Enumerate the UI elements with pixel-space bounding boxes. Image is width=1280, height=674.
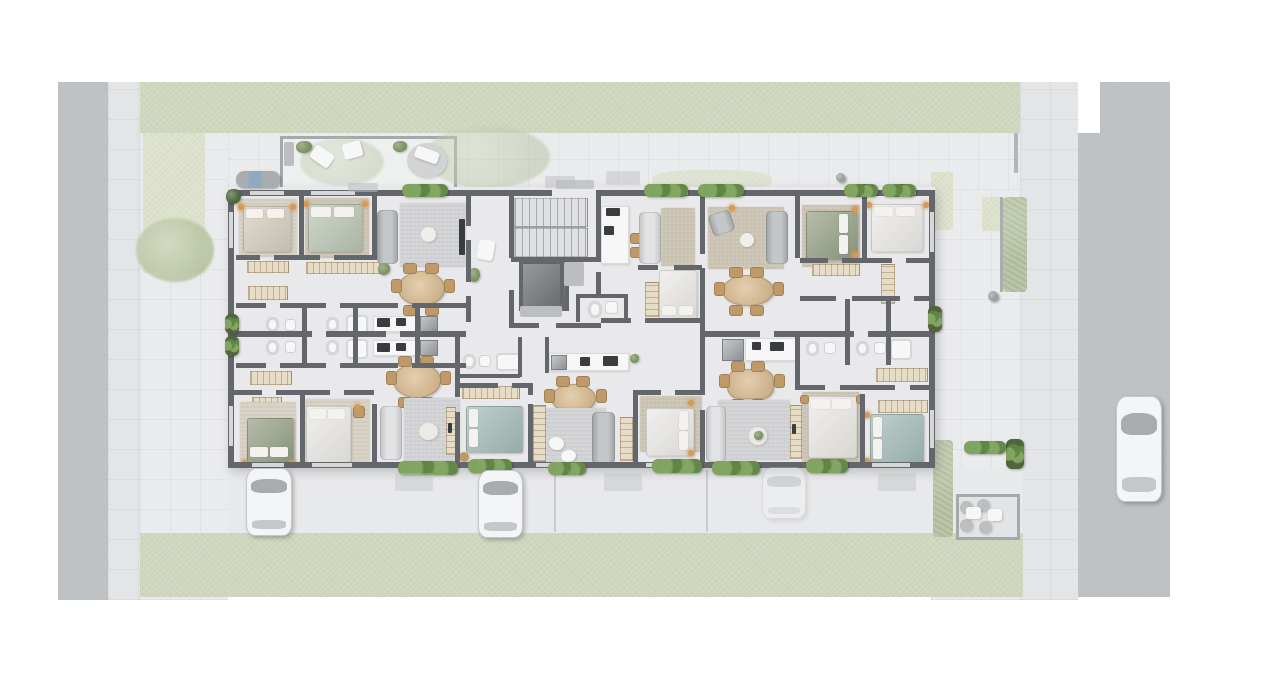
lounger-terrace-a (476, 239, 495, 261)
patio-fence-left (280, 136, 283, 190)
toilet-core (588, 301, 602, 318)
stove-f (770, 342, 784, 351)
wall-f-beds-2 (840, 385, 895, 390)
right-hedge-wall (1000, 197, 1003, 292)
wall-a-beds-2 (274, 255, 320, 260)
dining-table-d (393, 363, 441, 398)
planter-bottom-6 (806, 459, 848, 473)
wall-core-left-1 (509, 196, 514, 258)
stove-a (377, 318, 390, 327)
planter-right-wall (928, 306, 942, 332)
wall-shaft (560, 260, 564, 304)
right-wall-small (1014, 133, 1018, 173)
patio-shelf (284, 142, 294, 166)
br-patio-table-2 (988, 509, 1002, 521)
chair-f-3 (719, 374, 730, 388)
pillow-c2-l (874, 207, 893, 216)
person-plaza (988, 291, 998, 301)
wall-mid-left-1 (232, 331, 312, 337)
wall-lobby-2 (556, 323, 601, 328)
fridge-e (551, 355, 567, 370)
window-right-2 (930, 410, 934, 448)
toilet-bath-a1 (266, 317, 279, 332)
wall-e-kitchen-v (545, 337, 549, 373)
wall-corebath-h (576, 294, 628, 298)
wall-d-kit-v (415, 337, 420, 365)
wardrobe-a2 (306, 262, 380, 274)
pillow-d2-l (309, 409, 326, 419)
toilet-bath-d1 (266, 340, 279, 355)
lamp-e2-t (688, 400, 694, 406)
chair-f-2 (751, 361, 765, 372)
sink-e (479, 355, 491, 367)
wardrobe-d1 (250, 371, 292, 385)
wall-c-bath-v1 (845, 299, 850, 331)
chair-d-3 (386, 371, 397, 385)
wall-a-band-4 (412, 303, 466, 308)
entry-mat (556, 180, 594, 189)
pillow-a1-r (267, 209, 284, 218)
right-road-top (1100, 82, 1170, 135)
parking-pad-2 (604, 473, 642, 491)
patio-fence-top (280, 136, 457, 139)
dining-table-a (398, 271, 445, 306)
wall-a-band-3 (340, 303, 398, 308)
br-patio-chair-4 (979, 521, 992, 534)
planter-top-3 (698, 184, 744, 197)
tv-d (448, 423, 452, 433)
tv-unit-a (459, 219, 465, 255)
sink-f (752, 342, 761, 350)
lamp-a1-r (290, 204, 296, 210)
sofa-d (380, 406, 402, 460)
right-bush-strip (1006, 439, 1024, 469)
wall-a-beds-1 (236, 255, 260, 260)
wall-b-bed-4 (645, 318, 700, 323)
wall-f-beds-3 (910, 385, 935, 390)
lamp-a1-l (238, 204, 244, 210)
br-patio-table-1 (966, 507, 981, 519)
planter-top-1 (402, 184, 448, 197)
wall-c-living-c1 (795, 196, 800, 258)
wall-c-bath-v2 (886, 299, 891, 331)
wall-a-terrace-2 (466, 240, 471, 282)
car-parked-2 (478, 470, 523, 538)
car-street-right (1116, 396, 1162, 502)
stair-flight-1 (514, 198, 588, 227)
wall-a-band-1 (236, 303, 266, 308)
stair-flight-2 (514, 228, 588, 257)
left-tree (136, 218, 214, 282)
pillow-f1-l (811, 399, 830, 409)
wall-core-right-2 (596, 272, 601, 294)
sink-bath-f1 (824, 342, 836, 354)
lamp-c1-t (852, 206, 858, 212)
pillow-f2-b (873, 439, 882, 459)
car-parked-1 (246, 468, 292, 536)
wall-f1-f2 (860, 394, 865, 468)
wardrobe-e2 (620, 417, 633, 461)
window-left-1 (229, 212, 233, 248)
microwave-a (396, 318, 406, 326)
wall-e-bath-v (518, 337, 522, 377)
sink-bath-a1 (285, 319, 296, 331)
left-road (58, 82, 108, 600)
wall-e1-top-1 (458, 383, 498, 388)
wall-a-beds-3 (334, 255, 372, 260)
wall-e-bath (458, 374, 520, 378)
planter-top-4 (844, 184, 878, 197)
pillow-d2-r (328, 409, 345, 419)
top-grass-band (140, 82, 1020, 133)
wall-f-bath-left (795, 337, 800, 385)
wall-b-c-1 (700, 196, 705, 254)
pillow-d1-r (270, 447, 288, 457)
wall-core-left-2 (509, 290, 514, 326)
bottom-grass-band (140, 533, 1023, 597)
wall-corebath-v1 (576, 294, 580, 322)
pillow-b-1 (662, 306, 676, 315)
chair-c-1 (729, 267, 743, 278)
window-right-1 (930, 212, 934, 252)
pillow-f1-r (832, 399, 851, 409)
bed-d1 (247, 418, 294, 465)
chair-e-3 (544, 389, 555, 403)
car-ghost (762, 467, 806, 519)
parking-pad-1 (395, 473, 433, 491)
pillow-c1-b (839, 235, 848, 254)
wall-a2-living (372, 196, 377, 260)
wall-b-bed-2 (674, 265, 702, 270)
pillow-e2-t (679, 411, 688, 430)
stove-b (606, 208, 620, 216)
planter-bottom-3 (548, 462, 586, 475)
wall-d-e-2 (455, 412, 460, 468)
chair-a-1 (403, 263, 417, 274)
wardrobe-c1 (812, 264, 860, 276)
right-sidewalk (1020, 82, 1078, 600)
sofa-e (592, 412, 615, 464)
chair-d-4 (440, 371, 451, 385)
pillow-e2-b (679, 431, 688, 450)
walkway-pad-1 (348, 183, 378, 192)
sink-bath-f2 (874, 342, 886, 354)
planter-top-5 (882, 184, 916, 197)
chair-a-4 (444, 279, 455, 293)
lamp-c (729, 205, 735, 211)
scooter (236, 171, 280, 188)
pillow-c2-r (896, 207, 915, 216)
br-patio-chair-3 (960, 519, 973, 532)
chair-c-5 (729, 305, 743, 316)
pillow-b-2 (679, 306, 693, 315)
pillow-a1-l (246, 209, 263, 218)
wall-d1-d2 (300, 394, 305, 468)
coffee-table-a (421, 227, 436, 242)
shaft (564, 262, 584, 286)
pillow-c1-t (839, 214, 848, 233)
toilet-f2 (856, 341, 869, 356)
sink-kitchen-e (580, 357, 590, 366)
window-bottom-8 (872, 463, 910, 467)
sideboard-e (533, 405, 546, 462)
lamp-a2-r (362, 201, 368, 207)
wall-d-band-1 (236, 363, 266, 368)
wall-e2-left (633, 394, 638, 468)
drive-seam-2 (706, 470, 708, 532)
dresser-a (248, 286, 288, 300)
stove-d (377, 343, 390, 352)
planter-bottom-right (964, 441, 1006, 454)
nightstand-f1-l (800, 395, 809, 404)
sink-core (605, 301, 618, 314)
coffee-table-d (419, 423, 438, 440)
wall-b-bed-1 (638, 265, 658, 270)
chair-c-4 (773, 282, 784, 296)
pillow-a2-l (311, 207, 331, 217)
pillow-f2-t (873, 417, 882, 437)
pillow-e1-b (469, 429, 478, 447)
br-patio-fence-left (956, 494, 959, 540)
wall-a-bath-v1 (302, 306, 307, 333)
wall-c1-c2 (862, 196, 867, 258)
sofa-b (639, 212, 661, 264)
lobby-mat (520, 306, 562, 317)
coffee-table-c (740, 233, 754, 247)
sink-b (604, 226, 614, 235)
wall-f-bath-v2 (886, 337, 891, 365)
wardrobe-f1 (876, 368, 928, 382)
lamp-d2 (355, 404, 360, 409)
chair-f-4 (774, 374, 785, 388)
microwave-d (396, 343, 406, 351)
shower-f (890, 339, 912, 360)
chair-c-2 (750, 267, 764, 278)
wall-c-band-2 (852, 296, 900, 301)
chair-f-1 (731, 361, 745, 372)
wall-e1-right-2 (528, 404, 533, 468)
wall-d-beds-3 (344, 390, 374, 395)
tv-f (792, 424, 796, 434)
wall-b-bed-3 (601, 318, 631, 323)
br-patio-fence-top (956, 494, 1020, 497)
wall-mid-right-2 (774, 331, 854, 337)
pillow-a2-r (334, 207, 354, 217)
wardrobe-a1 (247, 261, 289, 273)
planter-left-1 (225, 314, 239, 334)
wall-d-bath-v1 (302, 337, 307, 365)
wall-a-bath-v2 (353, 306, 358, 333)
sofa-f (706, 406, 726, 462)
wall-c-beds-1 (800, 258, 828, 263)
walkway-pad-3 (606, 171, 640, 185)
br-patio-fence-right (1017, 494, 1020, 540)
chair-a-3 (391, 279, 402, 293)
wall-e-f-2 (700, 410, 705, 468)
wall-stairs-bottom (511, 257, 601, 262)
planter-left-2 (225, 336, 239, 356)
wall-c-band-3 (914, 296, 934, 301)
right-road (1078, 133, 1170, 597)
wall-mid-right-3 (868, 331, 935, 337)
entrance-gap (552, 190, 596, 196)
pillow-e1-t (469, 409, 478, 427)
right-hedge-1b (982, 197, 1000, 231)
toilet-f1 (806, 341, 819, 356)
wall-c-beds-2 (842, 258, 892, 263)
statue-walkway (836, 173, 845, 182)
left-sidewalk (108, 82, 142, 600)
rug-living-b (661, 208, 695, 266)
right-hedge-2 (933, 440, 953, 537)
wall-d-band-4 (412, 363, 466, 368)
drive-seam-1 (554, 470, 556, 532)
pillow-d1-l (250, 447, 268, 457)
dining-table-c (722, 275, 774, 306)
toilet-bath-d2 (326, 340, 339, 355)
chair-c-3 (714, 282, 725, 296)
wall-e2-top-1 (633, 390, 661, 395)
stove-e (603, 356, 618, 366)
wall-c-beds-3 (906, 258, 934, 263)
window-bottom-1 (252, 463, 284, 467)
br-patio-fence-bottom (956, 537, 1020, 540)
wall-a-kit-v (415, 306, 420, 333)
stool-e1 (459, 452, 469, 462)
right-hedge-1 (1003, 197, 1027, 292)
wall-a1-a2 (299, 196, 304, 258)
wall-mid-right-1 (700, 331, 760, 337)
parking-pad-3 (878, 473, 916, 491)
bed-c1 (806, 211, 858, 260)
chair-e-1 (556, 376, 570, 387)
site-plan-canvas (0, 0, 1280, 674)
dining-table-f (727, 369, 774, 399)
wall-d2-living (372, 404, 377, 468)
wall-f-beds-1 (795, 385, 825, 390)
wardrobe-f2 (878, 400, 928, 413)
toilet-bath-a2 (326, 317, 339, 332)
wall-a-terrace-3 (466, 296, 471, 322)
chair-e-2 (576, 376, 590, 387)
window-left-2 (229, 406, 233, 446)
wall-core-right-1 (596, 196, 601, 258)
wall-e1-right-1 (528, 383, 533, 395)
planter-top-2 (644, 184, 688, 197)
chair-c-6 (750, 305, 764, 316)
fridge-d (420, 340, 438, 356)
planter-bottom-5 (712, 461, 760, 475)
stair-rail (514, 226, 586, 228)
wardrobe-b (645, 282, 659, 317)
chair-e-4 (596, 389, 607, 403)
wall-d-bath-v2 (353, 337, 358, 365)
window-top-1 (250, 191, 284, 195)
sofa-c (766, 211, 788, 264)
sofa-a (377, 210, 398, 264)
wall-lobby-1 (509, 323, 539, 328)
chair-a-2 (425, 263, 439, 274)
lamp-e2-b (688, 450, 694, 456)
window-bottom-2 (312, 463, 352, 467)
wall-d-band-3 (340, 363, 398, 368)
wall-b-c-2 (700, 268, 705, 336)
wall-e-f-1 (700, 337, 705, 395)
wall-a-terrace-1 (466, 196, 471, 226)
wall-c-band-1 (800, 296, 836, 301)
planter-bottom-4 (652, 459, 702, 473)
wall-f-bath-v1 (845, 337, 850, 365)
fridge-f (722, 339, 744, 361)
sink-bath-d1 (285, 341, 296, 353)
chair-d-1 (398, 356, 412, 367)
fridge-a (420, 316, 438, 332)
wall-d-beds-1 (232, 390, 262, 395)
